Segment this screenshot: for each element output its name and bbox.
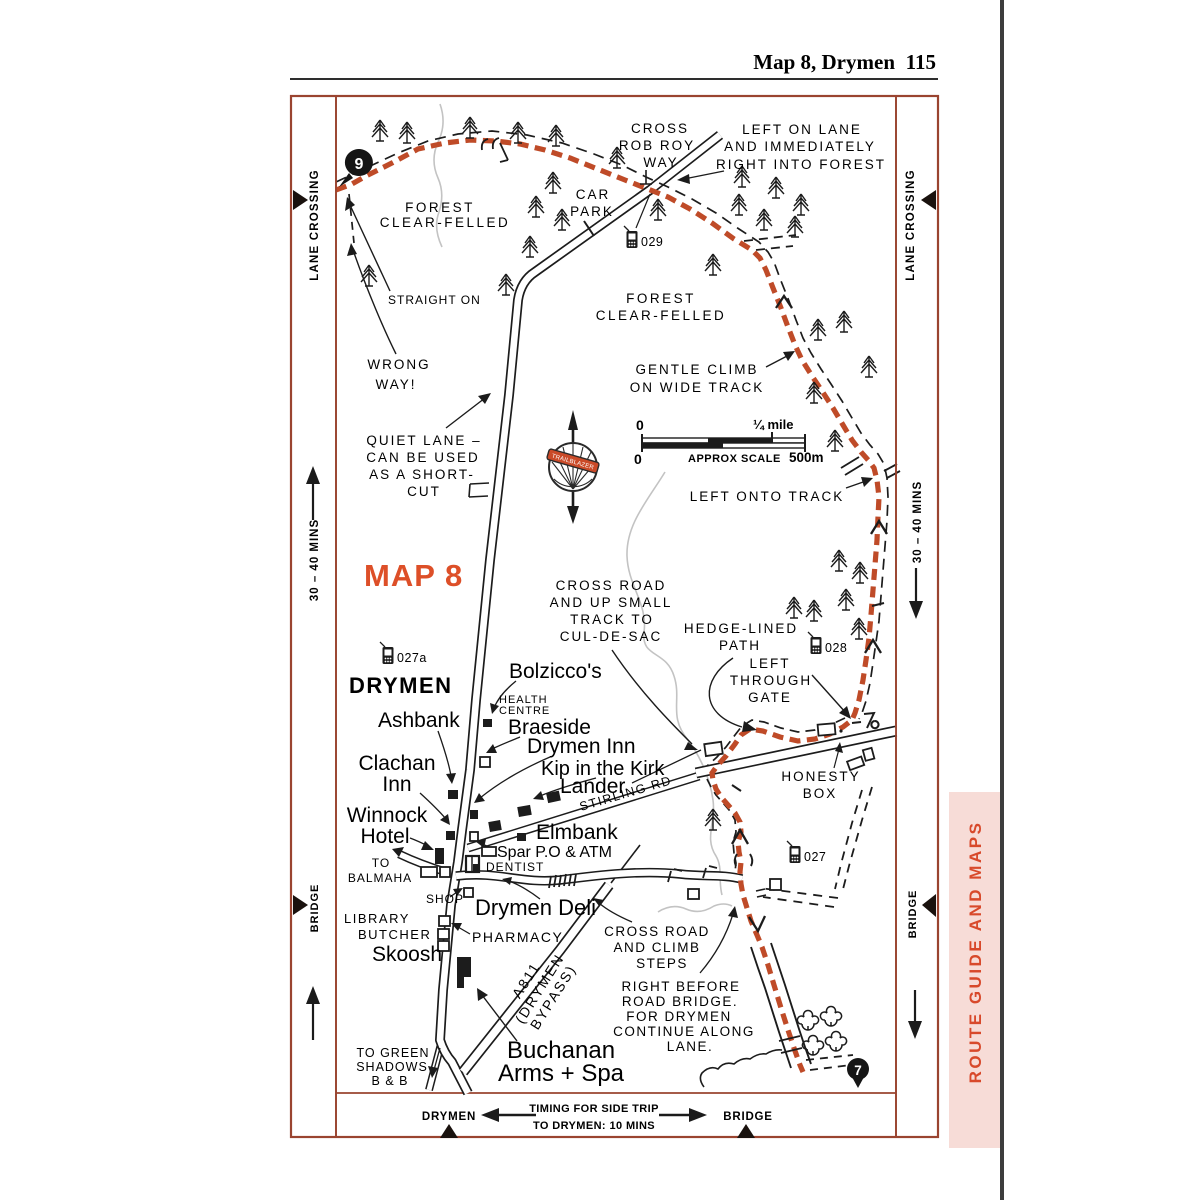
- svg-text:TO GREEN: TO GREEN: [356, 1046, 429, 1060]
- svg-text:LANE CROSSING: LANE CROSSING: [309, 169, 321, 280]
- svg-text:ON WIDE TRACK: ON WIDE TRACK: [630, 380, 765, 395]
- svg-text:LEFT ONTO TRACK: LEFT ONTO TRACK: [690, 489, 845, 504]
- svg-text:WAY!: WAY!: [376, 377, 417, 392]
- svg-text:7: 7: [854, 1063, 862, 1078]
- svg-text:FOREST: FOREST: [626, 291, 696, 306]
- svg-text:QUIET LANE –: QUIET LANE –: [366, 433, 481, 448]
- svg-text:CUL-DE-SAC: CUL-DE-SAC: [560, 629, 663, 644]
- svg-text:0: 0: [634, 451, 642, 467]
- svg-text:WRONG: WRONG: [367, 357, 430, 372]
- svg-text:Inn: Inn: [382, 773, 411, 796]
- svg-text:Clachan: Clachan: [358, 752, 435, 775]
- svg-text:CLEAR-FELLED: CLEAR-FELLED: [596, 308, 727, 323]
- svg-text:9: 9: [355, 156, 364, 173]
- svg-text:RIGHT BEFORE: RIGHT BEFORE: [621, 979, 740, 994]
- svg-text:BUTCHER: BUTCHER: [358, 927, 431, 942]
- svg-text:MAP 8: MAP 8: [364, 558, 463, 593]
- svg-text:AS A SHORT-: AS A SHORT-: [369, 467, 475, 482]
- svg-text:TIMING FOR SIDE TRIP: TIMING FOR SIDE TRIP: [529, 1103, 659, 1115]
- svg-text:BRIDGE: BRIDGE: [309, 884, 321, 933]
- svg-text:AND IMMEDIATELY: AND IMMEDIATELY: [724, 139, 876, 154]
- svg-text:028: 028: [825, 641, 847, 655]
- svg-text:TO DRYMEN: 10 MINS: TO DRYMEN: 10 MINS: [533, 1120, 655, 1132]
- svg-text:CAN BE USED: CAN BE USED: [366, 450, 480, 465]
- svg-text:DENTIST: DENTIST: [486, 860, 544, 874]
- svg-text:CLEAR-FELLED: CLEAR-FELLED: [380, 215, 511, 230]
- svg-text:500m: 500m: [789, 450, 824, 465]
- svg-text:WAY: WAY: [643, 155, 678, 170]
- svg-text:LIBRARY: LIBRARY: [344, 911, 410, 926]
- svg-text:CROSS ROAD: CROSS ROAD: [556, 578, 667, 593]
- svg-text:Drymen Deli: Drymen Deli: [475, 895, 596, 920]
- svg-text:BOX: BOX: [803, 786, 838, 801]
- svg-text:Map 8, Drymen: Map 8, Drymen: [753, 50, 895, 74]
- svg-text:GENTLE CLIMB: GENTLE CLIMB: [635, 362, 758, 377]
- svg-text:HEDGE-LINED: HEDGE-LINED: [684, 621, 798, 636]
- svg-text:DRYMEN: DRYMEN: [349, 673, 453, 698]
- svg-text:CROSS: CROSS: [631, 121, 689, 136]
- svg-text:LEFT ON LANE: LEFT ON LANE: [742, 122, 862, 137]
- svg-text:FOR DRYMEN: FOR DRYMEN: [626, 1009, 732, 1024]
- svg-text:HONESTY: HONESTY: [781, 769, 860, 784]
- svg-text:Hotel: Hotel: [360, 825, 409, 848]
- svg-text:Spar P.O & ATM: Spar P.O & ATM: [497, 844, 612, 861]
- svg-text:BRIDGE: BRIDGE: [907, 890, 919, 939]
- svg-text:30 – 40 MINS: 30 – 40 MINS: [309, 519, 321, 601]
- svg-text:APPROX SCALE: APPROX SCALE: [688, 453, 781, 465]
- svg-text:SHOP: SHOP: [426, 892, 464, 906]
- svg-text:027a: 027a: [397, 651, 427, 665]
- svg-text:BALMAHA: BALMAHA: [348, 871, 412, 885]
- svg-text:Ashbank: Ashbank: [378, 709, 460, 732]
- svg-text:AND CLIMB: AND CLIMB: [613, 940, 700, 955]
- svg-text:029: 029: [641, 235, 663, 249]
- svg-text:0: 0: [636, 417, 644, 433]
- svg-text:ROAD BRIDGE.: ROAD BRIDGE.: [622, 994, 738, 1009]
- svg-text:FOREST: FOREST: [405, 200, 475, 215]
- svg-text:CROSS ROAD: CROSS ROAD: [604, 924, 710, 939]
- svg-text:Winnock: Winnock: [347, 804, 428, 827]
- svg-text:PATH: PATH: [719, 638, 761, 653]
- svg-text:ROB ROY: ROB ROY: [619, 138, 695, 153]
- svg-text:LANE CROSSING: LANE CROSSING: [905, 169, 917, 280]
- svg-text:THROUGH: THROUGH: [730, 673, 812, 688]
- svg-text:AND UP SMALL: AND UP SMALL: [550, 595, 673, 610]
- svg-text:TO: TO: [372, 856, 390, 870]
- svg-text:30 – 40 MINS: 30 – 40 MINS: [912, 481, 924, 563]
- svg-text:DRYMEN: DRYMEN: [422, 1111, 476, 1123]
- svg-text:B & B: B & B: [372, 1074, 409, 1088]
- svg-text:PHARMACY: PHARMACY: [472, 929, 563, 945]
- svg-text:RIGHT INTO FOREST: RIGHT INTO FOREST: [716, 157, 886, 172]
- svg-text:CUT: CUT: [407, 484, 441, 499]
- svg-text:STRAIGHT ON: STRAIGHT ON: [388, 293, 481, 307]
- svg-text:BRIDGE: BRIDGE: [723, 1111, 773, 1123]
- svg-text:Bolzicco's: Bolzicco's: [509, 660, 602, 683]
- svg-text:GATE: GATE: [748, 690, 792, 705]
- svg-text:Drymen Inn: Drymen Inn: [527, 735, 636, 758]
- svg-text:ROUTE GUIDE AND MAPS: ROUTE GUIDE AND MAPS: [966, 821, 985, 1084]
- svg-text:LANE.: LANE.: [667, 1039, 714, 1054]
- svg-text:Elmbank: Elmbank: [536, 821, 618, 844]
- svg-text:115: 115: [906, 50, 936, 74]
- svg-text:LEFT: LEFT: [749, 656, 790, 671]
- svg-text:STEPS: STEPS: [636, 956, 688, 971]
- svg-text:Arms + Spa: Arms + Spa: [498, 1060, 625, 1087]
- svg-text:CAR: CAR: [576, 187, 611, 202]
- svg-text:027: 027: [804, 850, 826, 864]
- svg-text:SHADOWS: SHADOWS: [356, 1060, 428, 1074]
- svg-text:TRACK TO: TRACK TO: [570, 612, 654, 627]
- svg-text:¼ mile: ¼ mile: [753, 417, 793, 432]
- svg-text:PARK: PARK: [570, 204, 614, 219]
- svg-text:Skoosh: Skoosh: [372, 943, 442, 966]
- svg-text:CONTINUE ALONG: CONTINUE ALONG: [613, 1024, 755, 1039]
